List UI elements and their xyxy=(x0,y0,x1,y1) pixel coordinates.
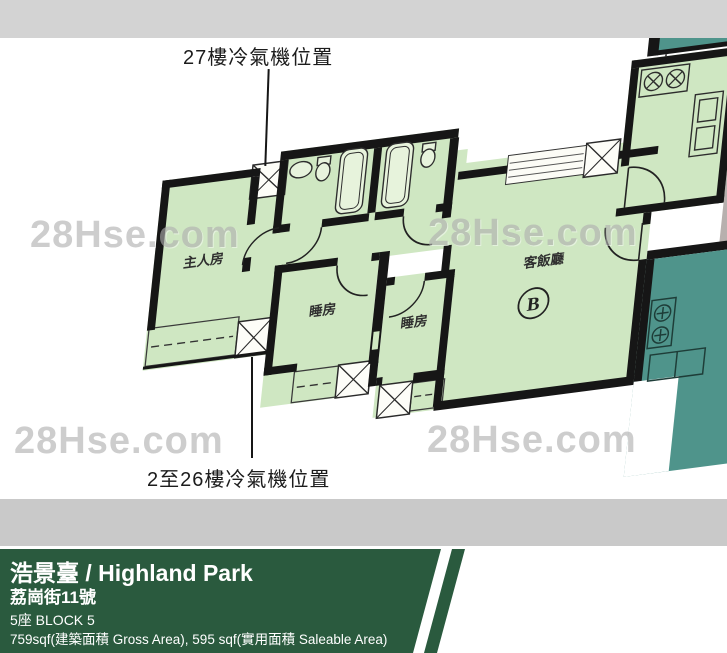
unit-b-letter: B xyxy=(526,293,541,316)
estate-address: 荔崗街11號 xyxy=(10,583,96,608)
ac-box-bed2 xyxy=(376,381,412,418)
leader-line-2-26f xyxy=(251,357,253,458)
watermark: 28Hse.com xyxy=(428,212,638,255)
annotation-ac-27f: 27樓冷氣機位置 xyxy=(183,41,333,70)
watermark: 28Hse.com xyxy=(30,214,240,257)
watermark: 28Hse.com xyxy=(14,420,224,463)
footer-green-panel: 浩景臺 / Highland Park 荔崗街11號 5座 BLOCK 5 75… xyxy=(0,549,500,653)
ac-box-living xyxy=(583,139,621,177)
ac-box-bed1 xyxy=(335,361,371,398)
watermark: 28Hse.com xyxy=(427,419,637,462)
annotation-ac-2-26f: 2至26樓冷氣機位置 xyxy=(147,463,330,492)
estate-areas: 759sqf(建築面積 Gross Area), 595 sqf(實用面積 Sa… xyxy=(10,628,387,648)
footer-bar: 浩景臺 / Highland Park 荔崗街11號 5座 BLOCK 5 75… xyxy=(0,546,727,653)
scan-band-bottom xyxy=(0,499,727,546)
estate-block: 5座 BLOCK 5 xyxy=(10,610,95,630)
scan-band-top xyxy=(0,0,727,38)
floorplan-page: 主人房 睡房 睡房 客飯廳 B 27樓冷氣機位置 2至26樓冷氣機位置 28Hs… xyxy=(0,0,727,653)
